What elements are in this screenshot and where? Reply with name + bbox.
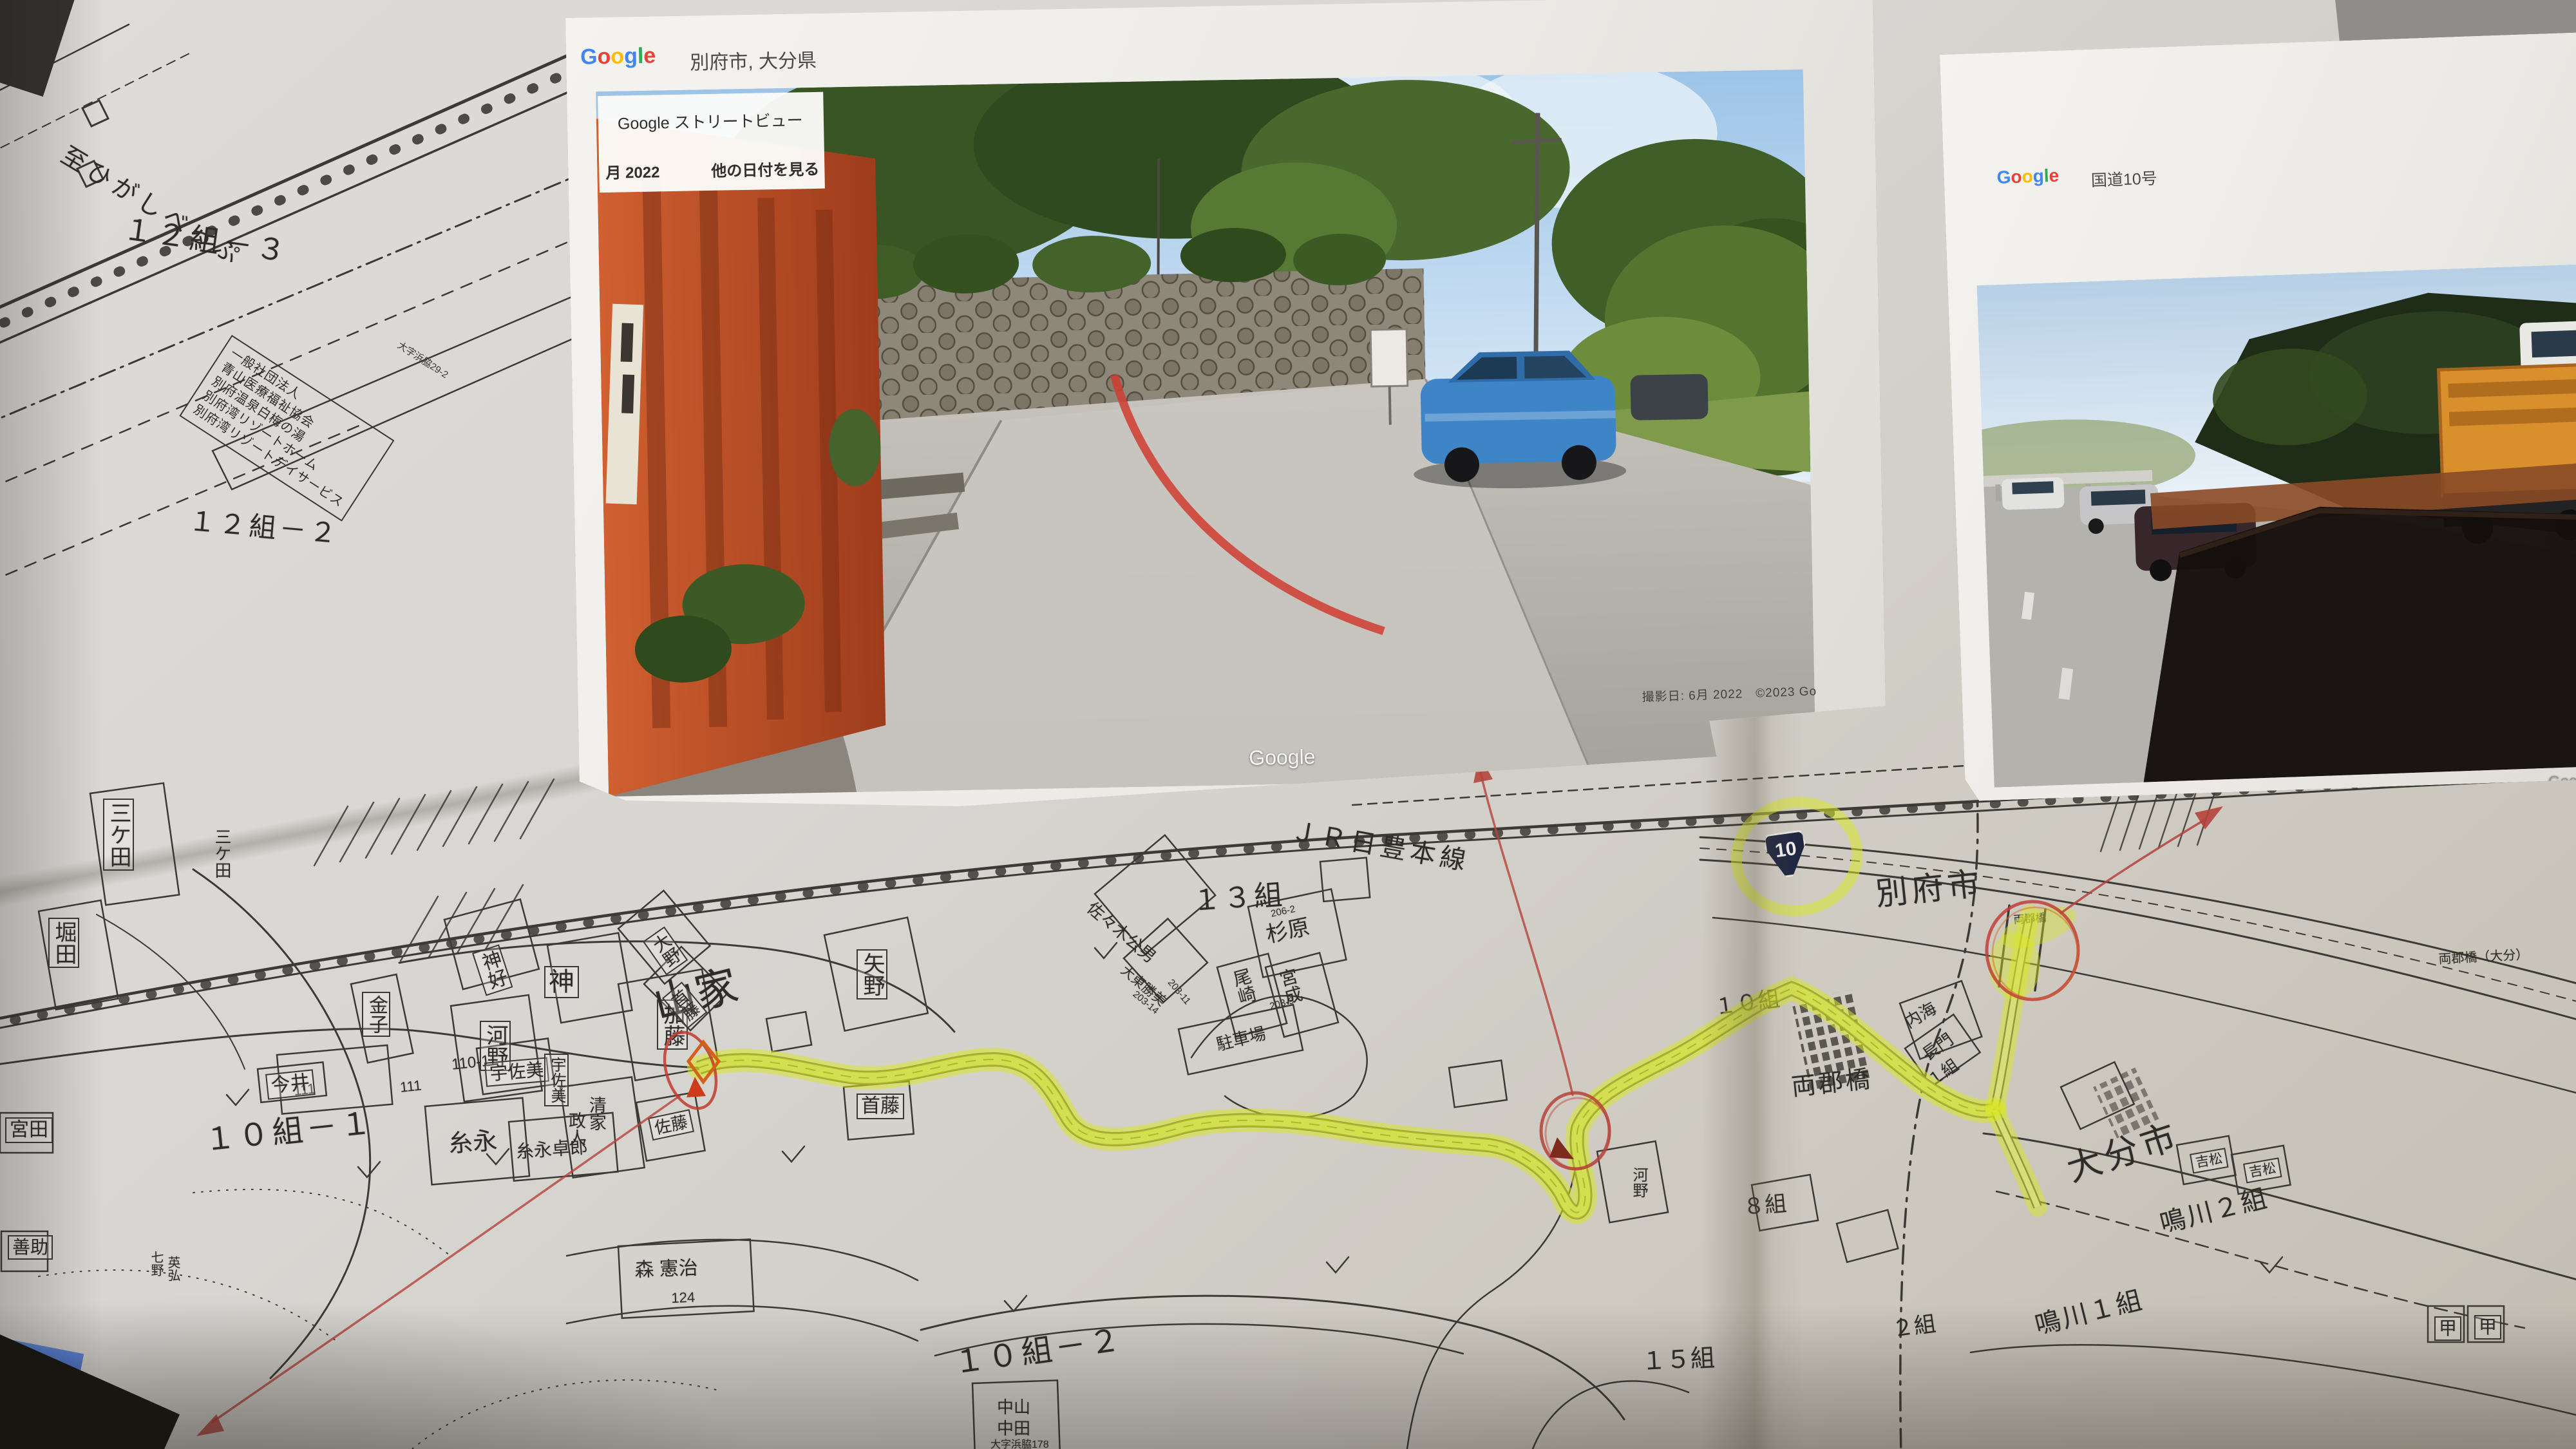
streetview-printout-route10: Google 国道10号 大分県 Google ストリートビュー 2月 2022… — [1940, 32, 2576, 802]
google-logo: Google — [580, 43, 656, 70]
streetview-title: Google ストリートビュー — [618, 108, 803, 134]
streetview-location: 別府市, 大分県 — [690, 44, 817, 75]
photo-of-annotated-map: 至ひがしべっぷ１２組－３１２組－２三ケ田三ケ田堀田金子河野加藤矢野神好神山家大野… — [0, 0, 2576, 1449]
streetview-printout-beppu: Google 別府市, 大分県 — [565, 0, 1887, 813]
google-logo: Google — [1996, 166, 2060, 188]
logo-letter: o — [597, 44, 611, 69]
logo-letter: g — [2032, 166, 2044, 186]
logo-letter: o — [2022, 166, 2033, 187]
logo-letter: o — [611, 44, 624, 68]
logo-letter: e — [643, 43, 656, 68]
streetview-photo-highway — [1977, 263, 2576, 788]
logo-letter: o — [2011, 167, 2022, 187]
streetview-route: 国道10号 — [2090, 166, 2157, 191]
streetview-date: 月 2022 — [605, 159, 660, 183]
google-watermark: Google — [1249, 745, 1316, 770]
logo-letter: e — [2049, 166, 2060, 186]
logo-letter: g — [624, 44, 638, 68]
other-dates-link[interactable]: 他の日付を見る — [711, 156, 820, 181]
logo-letter: G — [1996, 167, 2011, 187]
paper-fold-crease — [1701, 715, 1804, 1449]
logo-letter: G — [580, 44, 598, 69]
